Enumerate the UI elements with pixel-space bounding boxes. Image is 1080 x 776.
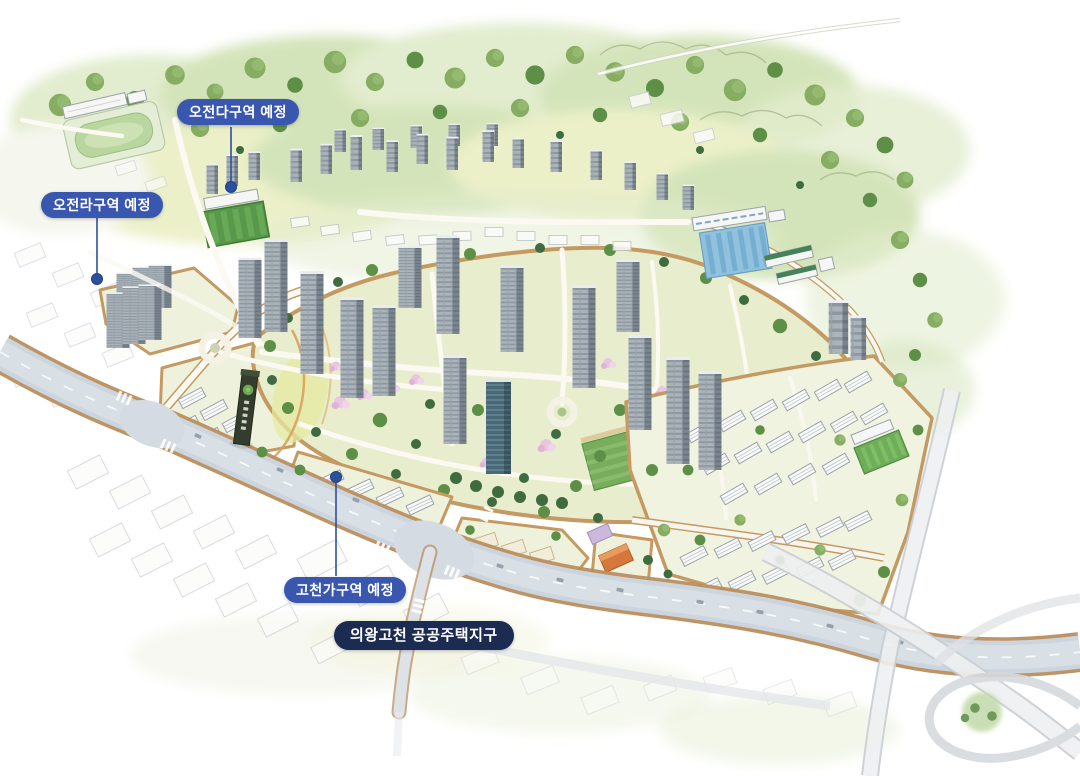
watercolor-birdseye-scene xyxy=(0,0,1080,776)
west-block-towers xyxy=(100,265,238,354)
marker-dot-ojeon-ra xyxy=(92,274,103,285)
masterplan-illustration: 오전다구역 예정 오전라구역 예정 고천가구역 예정 의왕고천 공공주택지구 xyxy=(0,0,1080,776)
callout-gocheon-ga: 고천가구역 예정 xyxy=(284,577,406,603)
callout-ojeon-ra: 오전라구역 예정 xyxy=(41,192,163,218)
marker-dot-ojeon-da xyxy=(226,182,237,193)
glass-tower xyxy=(486,379,512,474)
callout-ojeon-da: 오전다구역 예정 xyxy=(177,99,299,125)
callout-district-title: 의왕고천 공공주택지구 xyxy=(334,621,514,650)
marker-dot-gocheon-ga xyxy=(331,472,342,483)
